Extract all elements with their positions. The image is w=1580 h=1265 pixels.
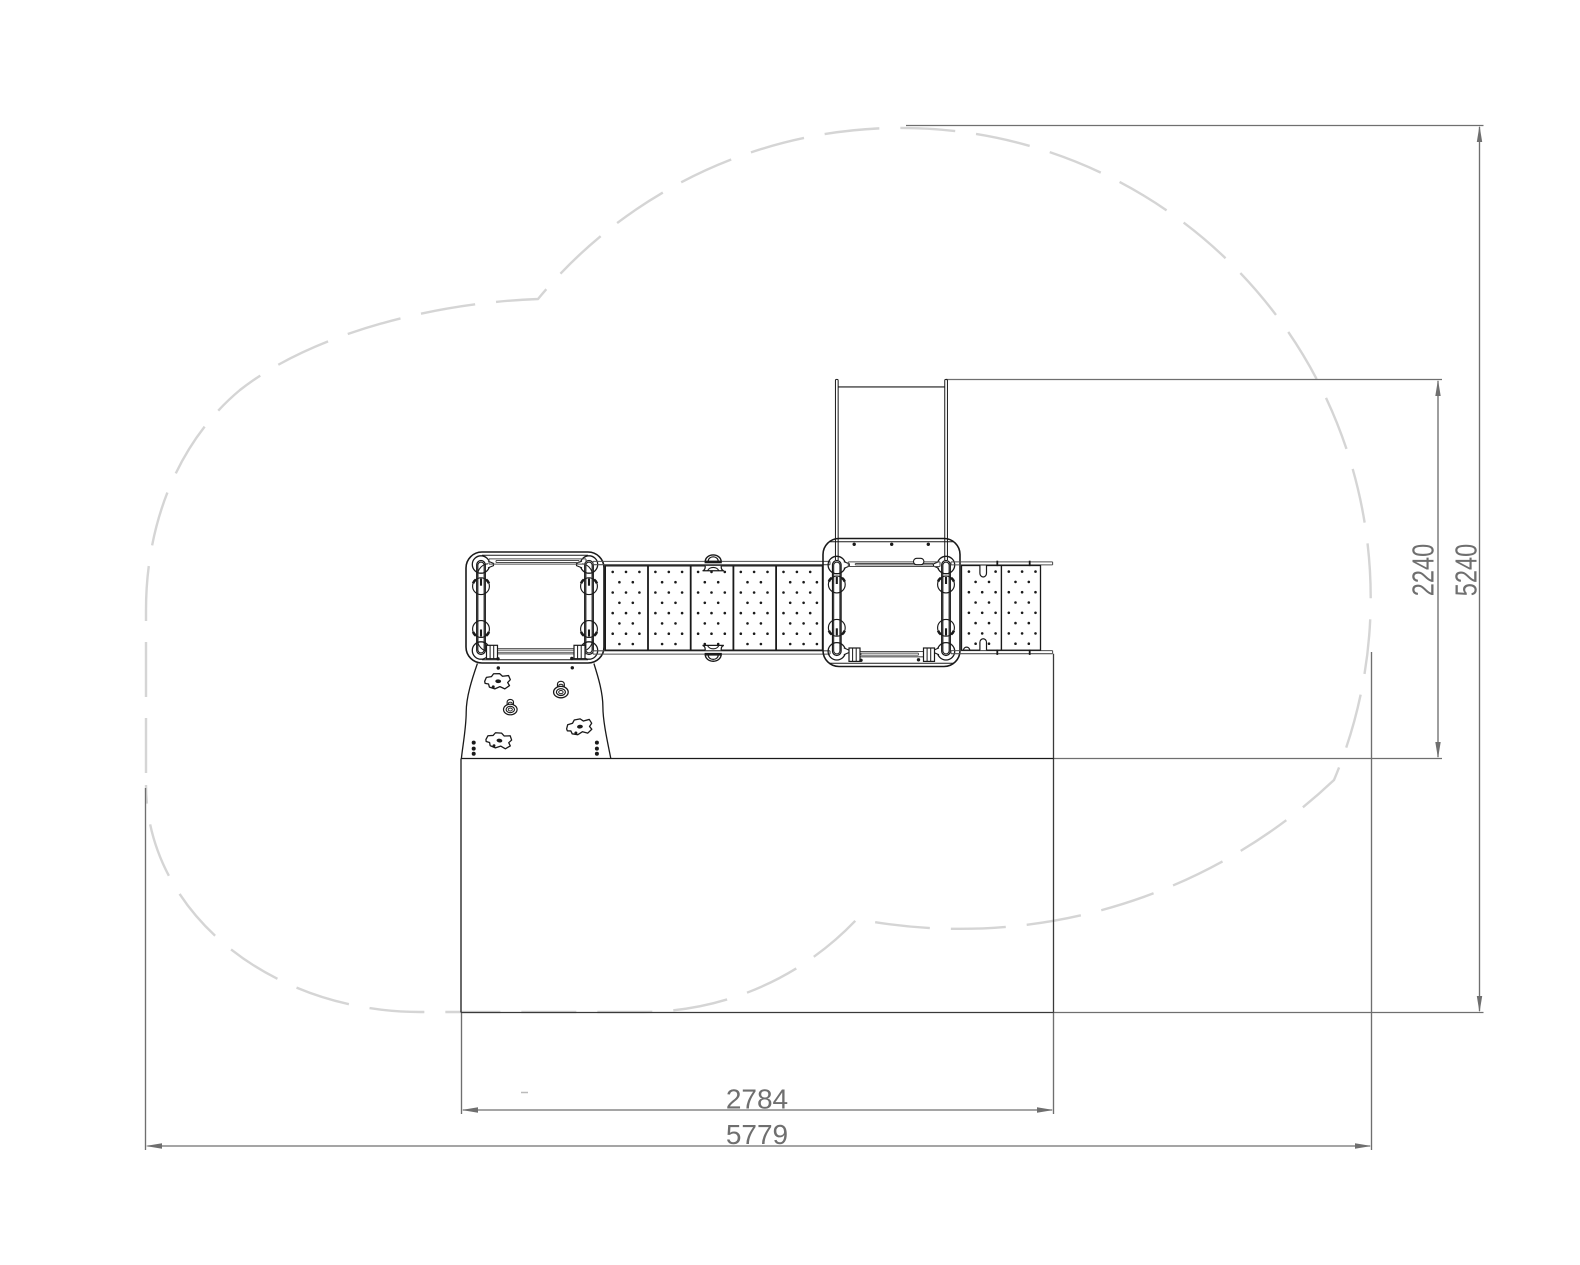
svg-text:5240: 5240: [1448, 544, 1483, 596]
svg-text:2240: 2240: [1405, 544, 1440, 596]
svg-text:5779: 5779: [726, 1119, 788, 1150]
svg-text:2784: 2784: [726, 1084, 788, 1115]
